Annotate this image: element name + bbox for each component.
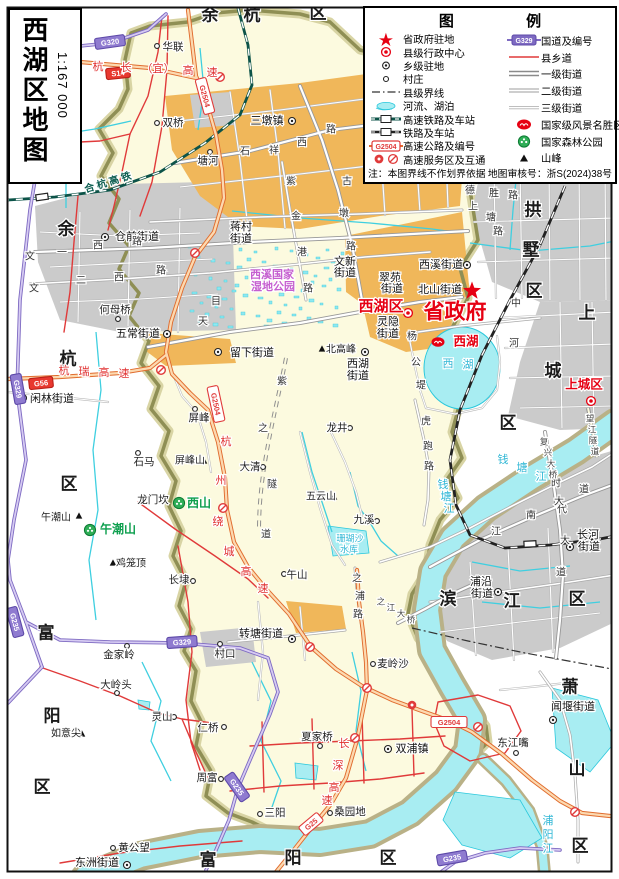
legend: 图 例 省政府驻地县级行政中心乡级驻地村庄县级界线河流、湖泊高速铁路及车站铁路及… <box>363 6 617 184</box>
vil-symbol <box>125 644 130 649</box>
map-label: 上 <box>579 303 596 322</box>
map-label: 屏峰山 <box>175 455 205 467</box>
map-scale: 1:167 000 <box>55 52 70 182</box>
town-symbol <box>215 349 222 356</box>
ic-symbol <box>351 734 360 743</box>
map-label: 紫 <box>286 176 296 188</box>
svg-text:G329: G329 <box>515 38 532 45</box>
map-label: 大 <box>547 458 556 468</box>
map-label: 西 <box>443 358 454 370</box>
legend-item: 县级行政中心 <box>369 45 507 58</box>
map-label: 何母桥 <box>99 303 131 316</box>
map-label: 灵山 <box>152 711 173 723</box>
map-label: 蒋村 <box>230 219 252 233</box>
legend-item: G329国道及编号 <box>507 32 613 49</box>
svg-text:G2504: G2504 <box>375 144 396 151</box>
map-label: 南 <box>526 509 536 522</box>
map-label: 城 <box>545 361 562 380</box>
map-label: 富 <box>200 849 217 869</box>
map-label: 江 <box>491 526 501 538</box>
map-label: 石 <box>240 147 250 158</box>
map-title-block: 西湖区地图 1:167 000 <box>8 8 82 184</box>
forest-icon <box>507 135 541 148</box>
peak-icon <box>507 153 541 163</box>
map-label: 大 <box>560 534 570 547</box>
legend-note-row: 注：本图界线不作划界依据 地图审核号：浙S(2024)38号 <box>365 166 615 180</box>
map-label: 杨 <box>407 330 417 343</box>
map-label: 上城区 <box>565 376 603 391</box>
legend-item: 县乡道 <box>507 49 613 66</box>
town-symbol <box>124 862 131 869</box>
map-label: 塘 <box>517 460 528 474</box>
vil-symbol <box>222 725 227 730</box>
map-label: 村口 <box>215 647 236 660</box>
map-label: 西 <box>93 241 103 252</box>
road-badge: G56 <box>28 376 53 389</box>
map-label: 阳 <box>285 848 302 867</box>
legend-item-label: 国家森林公园 <box>541 134 603 149</box>
map-label: 速 <box>322 794 333 807</box>
vil-symbol <box>136 451 141 456</box>
county-road-icon <box>507 53 541 61</box>
service-icon <box>369 153 403 165</box>
vil-symbol <box>261 465 266 470</box>
legend-title: 图 例 <box>365 10 615 31</box>
ic-symbol <box>219 504 228 513</box>
vil-symbol <box>155 121 160 126</box>
street3-icon <box>507 103 541 112</box>
map-label: 长河 <box>577 528 599 541</box>
map-label: 二 <box>76 276 86 287</box>
map-label: 之 <box>377 596 386 606</box>
map-label: 街道 <box>334 265 356 279</box>
map-label: 塘 <box>486 211 496 224</box>
map-label: 高 <box>99 365 110 379</box>
map-label: 区 <box>569 589 586 608</box>
ic-symbol <box>571 808 580 817</box>
map-label: 公 <box>411 358 421 369</box>
map-label: 东江嘴 <box>497 736 529 749</box>
street1-icon <box>507 69 541 78</box>
map-label: 九溪 <box>354 514 375 526</box>
legend-item: 铁路及车站 <box>369 126 507 139</box>
map-label: 高 <box>329 780 340 794</box>
vil-symbol <box>155 44 160 49</box>
town-symbol <box>289 636 296 643</box>
map-label: 双浦镇 <box>396 741 429 755</box>
map-label: 山 <box>569 759 586 778</box>
map-label: 江 <box>444 502 455 515</box>
map-label: 北高峰 <box>326 343 356 356</box>
legend-item-label: 山峰 <box>541 150 562 165</box>
legend-item: 县级界线 <box>369 86 507 99</box>
map-label: 闲林街道 <box>30 391 74 405</box>
vil-symbol <box>193 407 198 412</box>
road-badge: G329 <box>167 635 198 648</box>
map-label: 一 <box>57 248 67 259</box>
legend-note: 注：本图界线不作划界依据 <box>368 166 486 180</box>
map-label: 杭 <box>59 363 70 377</box>
map-label: 江 <box>588 424 597 434</box>
legend-item-label: 二级街道 <box>541 83 582 98</box>
map-label: 路 <box>346 240 356 253</box>
map-label: 路 <box>326 123 336 136</box>
map-label: 屏峰 <box>189 412 210 424</box>
map-label: 珊瑚沙 <box>336 533 363 543</box>
map-label: 隧 <box>267 478 277 491</box>
map-label: 路 <box>493 225 503 238</box>
map-label: 西湖 <box>347 357 369 370</box>
map-label: 文新 <box>334 254 356 268</box>
map-label: 目 <box>211 297 221 308</box>
rail-icon <box>369 127 403 137</box>
vil-symbol <box>191 579 196 584</box>
map-label: 城 <box>224 545 235 558</box>
map-label: 大岭头 <box>100 678 132 691</box>
map-label: 富 <box>38 622 55 642</box>
map-label: 路 <box>508 189 518 202</box>
map-label: 桑园地 <box>334 805 366 818</box>
map-label: 午潮山 <box>100 521 136 536</box>
stn-symbol <box>524 541 536 548</box>
legend-left-column: 省政府驻地县级行政中心乡级驻地村庄县级界线河流、湖泊高速铁路及车站铁路及车站G2… <box>369 32 507 166</box>
map-label: 街道 <box>471 586 493 600</box>
map-label: 长 <box>121 61 132 74</box>
map-label: 区 <box>526 281 543 300</box>
map-label: 州 <box>216 475 227 487</box>
map-label: 绕 <box>213 515 224 528</box>
map-label: 塘河 <box>198 154 219 167</box>
map-label: 祥 <box>269 144 279 157</box>
legend-approval: 地图审核号：浙S(2024)38号 <box>488 166 612 180</box>
forest-symbol <box>173 497 184 508</box>
boundary-icon <box>369 88 403 96</box>
map-label: 区 <box>61 474 78 493</box>
ic-symbol <box>191 249 200 258</box>
legend-item: 三级街道 <box>507 99 613 116</box>
township-icon <box>369 60 403 71</box>
map-label: 转塘街道 <box>239 626 283 640</box>
legend-item: G2504高速公路及编号 <box>369 139 507 152</box>
legend-item: 一级街道 <box>507 66 613 83</box>
town-symbol <box>385 746 392 753</box>
vil-symbol <box>328 811 333 816</box>
map-label: 路 <box>303 282 313 295</box>
county-center-icon <box>369 46 403 58</box>
map-label: 三阳 <box>265 807 286 819</box>
map-label: 湿地公园 <box>251 279 295 293</box>
legend-item: 高速铁路及车站 <box>369 112 507 125</box>
cc-symbol <box>404 309 413 318</box>
legend-item: 山峰 <box>507 150 613 167</box>
vil-symbol <box>218 642 223 647</box>
vil-symbol <box>348 426 353 431</box>
vil-symbol <box>514 751 519 756</box>
town-symbol <box>464 262 471 269</box>
map-label: 路 <box>353 608 363 621</box>
town-symbol <box>495 589 502 596</box>
map-label: 杭 <box>221 434 232 448</box>
map-label: 隧 <box>589 435 598 445</box>
vil-symbol <box>115 691 120 696</box>
map-label: 五云山 <box>306 491 336 503</box>
map-label: 阳 <box>543 828 554 841</box>
map-label: 中 <box>511 297 521 310</box>
vil-symbol <box>116 317 121 322</box>
legend-item-label: 三级街道 <box>541 100 582 115</box>
town-symbol <box>362 349 369 356</box>
map-label: 上 <box>468 201 478 213</box>
map-label: 胜 <box>489 188 499 200</box>
cc-symbol <box>587 397 596 406</box>
legend-item: 二级街道 <box>507 82 613 99</box>
village-icon <box>369 74 403 84</box>
map-label: 堤 <box>416 380 426 392</box>
map-label: 西山 <box>187 495 211 510</box>
vil-symbol <box>208 150 213 155</box>
star-icon <box>369 32 403 46</box>
map-label: 桥 <box>549 469 558 479</box>
map-label: 速 <box>258 582 269 595</box>
map-label: 闻堰街道 <box>551 699 595 713</box>
map-label: 塘 <box>441 489 452 503</box>
map-label: 麦岭沙 <box>377 657 409 670</box>
map-label: 午山 <box>287 568 308 581</box>
map-label: 天 <box>198 317 208 328</box>
map-label: 龙门坎 <box>137 493 169 506</box>
town-symbol <box>289 118 296 125</box>
legend-item: 高速服务区及互通 <box>369 153 507 166</box>
map-label: 北山街道 <box>418 282 462 296</box>
map-label: 钱 <box>438 477 449 491</box>
map-label: 瑞 <box>79 364 90 378</box>
scenic-symbol <box>432 337 445 347</box>
map-label: 双桥 <box>163 117 184 129</box>
legend-right-column: G329国道及编号县乡道一级街道二级街道三级街道国家级风景名胜区国家森林公园山峰 <box>507 32 613 166</box>
legend-item-label: 国道及编号 <box>541 33 592 48</box>
map-label: 速 <box>207 66 218 79</box>
map-label: 复 <box>540 436 549 446</box>
map-label: 路 <box>156 264 166 277</box>
map-label: 之 <box>352 572 362 585</box>
map-label: 路 <box>132 235 142 248</box>
town-symbol <box>102 234 109 241</box>
map-label: 五常街道 <box>116 326 160 340</box>
map-label: 港 <box>297 247 307 259</box>
map-label: 高 <box>183 63 194 77</box>
map-label: 西湖区 <box>358 298 403 315</box>
map-label: 兴 <box>544 447 553 457</box>
map-label: 西 <box>297 138 307 149</box>
map-label: 道 <box>261 528 271 541</box>
map-label: 夏家桥 <box>301 730 333 743</box>
map-label: 钱 <box>498 452 509 466</box>
map-label: 墅 <box>523 240 540 259</box>
ic-symbol <box>363 684 372 693</box>
map-label: 深 <box>333 759 344 772</box>
legend-item: 省政府驻地 <box>369 32 507 45</box>
map-label: 大 <box>554 495 564 508</box>
svg-text:G2504: G2504 <box>438 718 461 727</box>
map-label: 之 <box>258 422 268 435</box>
map-label: 大 <box>397 608 406 618</box>
map-label: 阳 <box>44 706 61 725</box>
vil-symbol <box>111 846 116 851</box>
legend-item: 国家森林公园 <box>507 133 613 150</box>
map-label: 道 <box>579 483 589 496</box>
legend-item-label: 国家级风景名胜区 <box>541 117 619 132</box>
map-label: 跑 <box>423 440 433 453</box>
map-label: 道 <box>556 566 566 579</box>
legend-item-label: 一级街道 <box>541 66 582 81</box>
map-label: 街道 <box>347 368 369 382</box>
ic-symbol <box>474 723 483 732</box>
legend-item-label: 高速服务区及互通 <box>403 152 485 167</box>
map-label: 望 <box>586 413 595 423</box>
map-label: 区 <box>500 413 517 432</box>
street2-icon <box>507 86 541 95</box>
map-label: 浦 <box>355 590 365 603</box>
map-label: 文 <box>29 282 39 295</box>
stn-symbol <box>36 193 49 201</box>
map-label: 省政府 <box>423 300 487 324</box>
map-label: 区 <box>380 848 397 867</box>
map-label: 长埭 <box>169 574 190 586</box>
forest-symbol <box>84 524 95 535</box>
expwy-badge-icon: G2504 <box>369 140 403 152</box>
ic-symbol <box>157 366 166 375</box>
map-label: 石马 <box>134 456 155 468</box>
svg-text:G329: G329 <box>173 637 192 647</box>
map-label: 华联 <box>163 40 184 53</box>
ic-symbol <box>306 643 315 652</box>
map-label: 周富 <box>197 771 218 784</box>
map-label: 金 <box>291 210 301 223</box>
map-label: 滨 <box>440 588 457 608</box>
legend-item: 河流、湖泊 <box>369 99 507 112</box>
vil-symbol <box>318 744 323 749</box>
map-label: 古 <box>342 175 352 188</box>
map-label: 街道 <box>230 231 252 245</box>
map-title: 西湖区地图 <box>16 16 53 182</box>
map-label: 湖 <box>463 358 474 371</box>
national-badge-icon: G329 <box>507 34 541 46</box>
map-label: 高 <box>241 564 252 578</box>
map-label: 午潮山 <box>41 511 71 524</box>
map-label: 三墩镇 <box>251 113 284 127</box>
map-label: 江 <box>536 470 547 483</box>
map-label: 德 <box>465 184 475 197</box>
legend-item: 村庄 <box>369 72 507 85</box>
map-label: 浦 <box>543 814 554 827</box>
map-label: 长 <box>339 737 350 750</box>
map-label: 黄公望 <box>118 841 150 854</box>
map-label: 区 <box>572 836 589 855</box>
map-label: 河 <box>509 338 519 350</box>
map-label: 水库 <box>340 543 358 554</box>
vil-symbol <box>258 812 263 817</box>
road-badge: G2504 <box>431 717 467 728</box>
hsr-icon <box>369 114 403 124</box>
map-label: 仁桥 <box>198 722 219 734</box>
map-label: 余 <box>57 218 76 238</box>
map-label: 拱 <box>525 199 542 219</box>
map-label: 萧 <box>562 677 579 696</box>
map-label: 灵隐 <box>377 315 399 328</box>
vil-symbol <box>219 777 224 782</box>
vil-symbol <box>371 662 376 667</box>
map-label: 街道 <box>381 281 403 295</box>
map-label: 墩 <box>339 207 349 220</box>
map-label: 路 <box>424 460 434 473</box>
map-page: S14G56G2504G2504G2504G25G320G329G329G235… <box>0 0 619 879</box>
map-label: 东洲街道 <box>75 855 119 869</box>
map-label: 浦沿 <box>470 575 492 588</box>
map-label: 龙井 <box>327 421 348 434</box>
sv-symbol <box>408 701 417 710</box>
town-symbol <box>164 331 171 338</box>
map-label: 区 <box>34 777 51 796</box>
map-label: 速 <box>119 367 130 380</box>
map-label: 西溪街道 <box>419 257 463 271</box>
map-label: 如意尖 <box>51 727 81 740</box>
map-label: 街道 <box>377 326 399 340</box>
map-label: （宜） <box>142 61 175 75</box>
scenic-icon <box>507 118 541 131</box>
map-label: 时 <box>551 478 561 490</box>
legend-columns: 省政府驻地县级行政中心乡级驻地村庄县级界线河流、湖泊高速铁路及车站铁路及车站G2… <box>365 31 615 166</box>
map-label: 街道 <box>578 539 600 553</box>
river-icon <box>369 100 403 112</box>
map-label: 金家岭 <box>103 648 135 661</box>
map-label: 桥 <box>407 614 416 624</box>
map-label: 西 <box>114 273 124 284</box>
map-label: 江 <box>543 842 554 855</box>
map-label: 西湖 <box>453 333 478 348</box>
map-label: 杭 <box>93 59 104 73</box>
vil-symbol <box>375 519 380 524</box>
map-label: 鸡笼顶 <box>116 557 146 570</box>
legend-item: 乡级驻地 <box>369 59 507 72</box>
map-label: 虎 <box>421 416 431 428</box>
map-label: 道 <box>591 446 600 456</box>
svg-text:G56: G56 <box>34 378 49 388</box>
map-label: 江 <box>387 602 396 612</box>
legend-item-label: 县乡道 <box>541 50 572 65</box>
map-label: 紫 <box>277 376 287 388</box>
map-label: 西溪国家 <box>250 267 295 281</box>
map-label: 文 <box>25 250 35 263</box>
map-label: 区 <box>310 3 327 22</box>
map-label: 留下街道 <box>230 345 274 359</box>
map-label: 江 <box>504 591 521 610</box>
legend-item: 国家级风景名胜区 <box>507 116 613 133</box>
map-label: 大清 <box>240 460 261 473</box>
town-symbol <box>550 717 557 724</box>
